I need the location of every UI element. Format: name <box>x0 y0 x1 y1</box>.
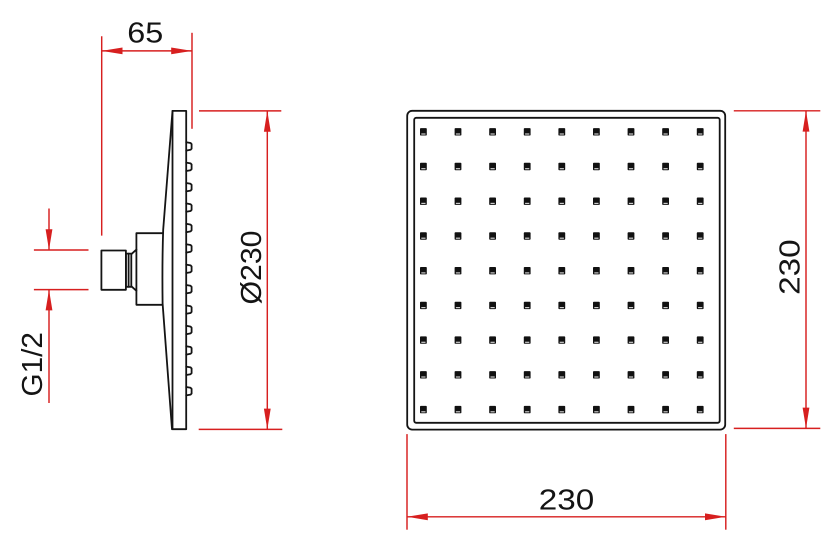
svg-text:Ø230: Ø230 <box>236 231 268 305</box>
svg-text:230: 230 <box>775 239 807 295</box>
svg-text:65: 65 <box>127 18 163 50</box>
svg-text:230: 230 <box>539 485 595 517</box>
svg-text:G1/2: G1/2 <box>17 332 49 397</box>
